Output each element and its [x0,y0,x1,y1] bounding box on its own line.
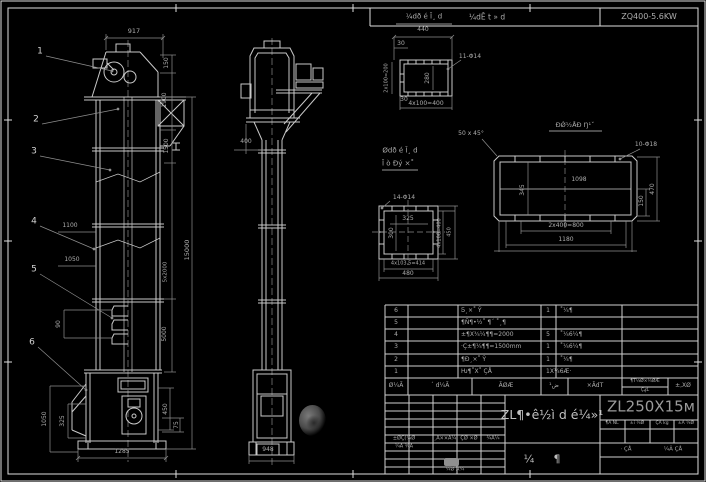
dim-front-15000: 15000 [184,240,191,261]
detail-c-bottom-480: 480 [402,271,413,277]
detail-c-right-450: 450 [448,227,453,237]
title-block-stage-label-1: ¶Ã ÑL [605,422,618,427]
title-block-sheet-no: ¼Ã ÇÅ [664,447,682,453]
bom-row-name: ¶Ð¸×˚ Ŷ [461,357,486,363]
header-right-model: ZQ400-5.6KW [621,13,677,21]
title-block-design-label: ¼Ã ¾Ã [395,445,413,450]
bom-table-grid [385,305,698,474]
dim-front-1900: 1900 [162,92,168,107]
side-view-linework [241,38,323,468]
bom-row-material: ˚¼¶ [560,357,573,363]
title-block-stage-label-3: ÇÃ kg [655,422,668,427]
bom-row-material: ˚¼6¼¶ [560,344,582,350]
detail-top-flange [396,24,452,96]
dim-front-1100: 1100 [62,223,77,229]
dim-front-5000: 5000 [162,326,168,341]
balloon-1: 1 [37,48,43,57]
detail-boot-flange-label-1: Ødð é Ī¸ d [382,148,417,155]
bom-header-weight-top: ¶T¼Ø×¼ØÆ [630,380,660,385]
title-block-check-label: ¼Ø Ã¼ [446,468,465,473]
bom-row-material: ˚¼¶ [560,308,573,314]
side-view-dimensions [234,124,294,464]
bom-row-qty: 1 [546,308,550,314]
detail-c-325: 325 [402,216,413,222]
title-block-rev-label-3: ÇØ ×Ø [460,437,477,442]
bom-row-qty: 1 [546,344,550,350]
detail-b-150: 150 [639,195,645,206]
detail-side-plate [494,131,637,228]
detail-a-holes: 11-Φ14 [459,54,481,60]
dim-boot-325: 325 [60,415,66,426]
dim-front-917: 917 [128,28,140,35]
bom-row-no: 4 [394,332,398,338]
detail-b-chamfer: 50 x 45° [458,131,484,137]
dim-side-948: 948 [262,447,273,453]
balloon-3: 3 [31,148,37,157]
title-block-model: ZL250X15м [607,400,695,415]
dim-boot-1050: 1050 [42,411,48,426]
screen-artifact-smudge-dark [306,415,322,431]
balloon-6: 6 [29,339,35,348]
detail-b-470: 470 [650,183,656,194]
detail-a-30b: 30 [400,97,408,103]
detail-side-plate-label: ĐǾ½ÅÐ Ŋ¹ˇ [556,122,595,129]
detail-c-holes: 14-Φ14 [393,195,415,201]
bom-row-name: ±¶X¾¼¶¶=2000 [461,332,514,338]
bom-header-code: ´ d¼Ã [431,383,450,389]
dim-front-90: 90 [56,320,62,328]
bom-row-no: 3 [394,344,398,350]
bom-row-name: Ƽ¸×˚ Ŷ [461,308,482,314]
detail-b-345: 345 [520,184,526,195]
dim-front-sections: 5x2000 [163,262,169,283]
bom-header-qty: ض¹ [549,383,559,389]
bom-row-name: Ƕ¶˚X˚ ÇÅ [461,369,492,375]
detail-c-bottom-414: 4x103.5=414 [391,262,425,267]
dim-front-1285: 1285 [114,449,129,455]
detail-a-30: 30 [397,41,405,47]
detail-boot-flange-dims [379,201,458,281]
title-block-rev-label-4: ¾Ã¼ [486,437,499,442]
bom-row-name: ·Ç±¶¼¶¶=1500mm [461,344,521,350]
detail-c-right-400: 4x100=400 [438,218,443,247]
title-block-type-char-a: ¼ [524,454,535,465]
balloon-5: 5 [31,266,37,275]
bom-row-material: ˚¼6¼¶ [560,332,582,338]
bom-header-weight-bottom: ÇؼL [641,389,649,394]
title-block-stage-label-4: ±Ã ¼Ø [678,422,694,427]
bom-header-no: Ø¼Ã [389,383,404,389]
detail-b-800: 2x400=800 [548,223,583,229]
title-block-rev-label-1: ±ØÇ(¼Ø [393,437,415,442]
detail-c-300: 300 [389,227,395,238]
front-view-dimensions [38,34,196,462]
dim-side-400: 400 [240,139,251,145]
title-block-type-char-b: ¶ [554,454,561,465]
detail-a-440: 440 [417,27,428,33]
bom-row-no: 1 [394,369,398,375]
bom-header-name: ÃØÆ [499,383,514,389]
bom-row-name: ¶Ñ¶•½˚ ¶´ ˚¸¶ [461,320,506,326]
front-view-linework [72,40,186,462]
detail-boot-flange-label-2: Ī ò Ðý ×˚ [382,161,414,168]
title-block-sheet-total: · ÇÅ [620,447,631,453]
balloon-2: 2 [33,116,39,125]
bom-header-material: ×ÃdT [587,383,604,389]
dim-boot-450: 450 [163,403,169,414]
balloon-4: 4 [31,218,37,227]
bom-row-qty: 1 [546,357,550,363]
detail-top-flange-label: ¼dð é Ī¸ d [406,14,443,21]
bom-row-qty: 1X¼6Æ· [546,369,571,375]
dim-front-150: 150 [164,57,170,68]
title-block-highlight-cell [444,458,459,466]
detail-b-holes: 10-Φ18 [635,142,657,148]
bom-row-no: 5 [394,320,398,326]
title-block-rev-label-2: ¸Ã××Ã¼ [434,437,457,442]
dim-front-1500: 1500 [164,138,170,153]
title-block-main-title: ZL¶•ê½ì d é¼»¹ [501,409,603,422]
bom-row-no: 2 [394,357,398,363]
title-block-stage-label-2: ±i ¼Ø [630,422,644,427]
bom-row-no: 6 [394,308,398,314]
detail-a-280: 280 [425,72,431,83]
dim-front-1050: 1050 [64,257,79,263]
detail-b-1180: 1180 [558,237,573,243]
cad-drawing-canvas: ¼dÊ t » d ZQ400-5.6KW 1 2 3 4 5 6 917 15… [0,0,706,482]
header-left-label: ¼dÊ t » d [469,13,505,21]
detail-b-1098: 1098 [571,177,586,183]
bom-header-remark: ±,XØ [675,383,691,389]
detail-a-bottom-dim: 4x100=400 [408,101,443,107]
dim-boot-75: 75 [174,421,180,429]
detail-a-left-dim: 2x100=200 [385,63,390,92]
bom-row-qty: 5 [546,332,550,338]
